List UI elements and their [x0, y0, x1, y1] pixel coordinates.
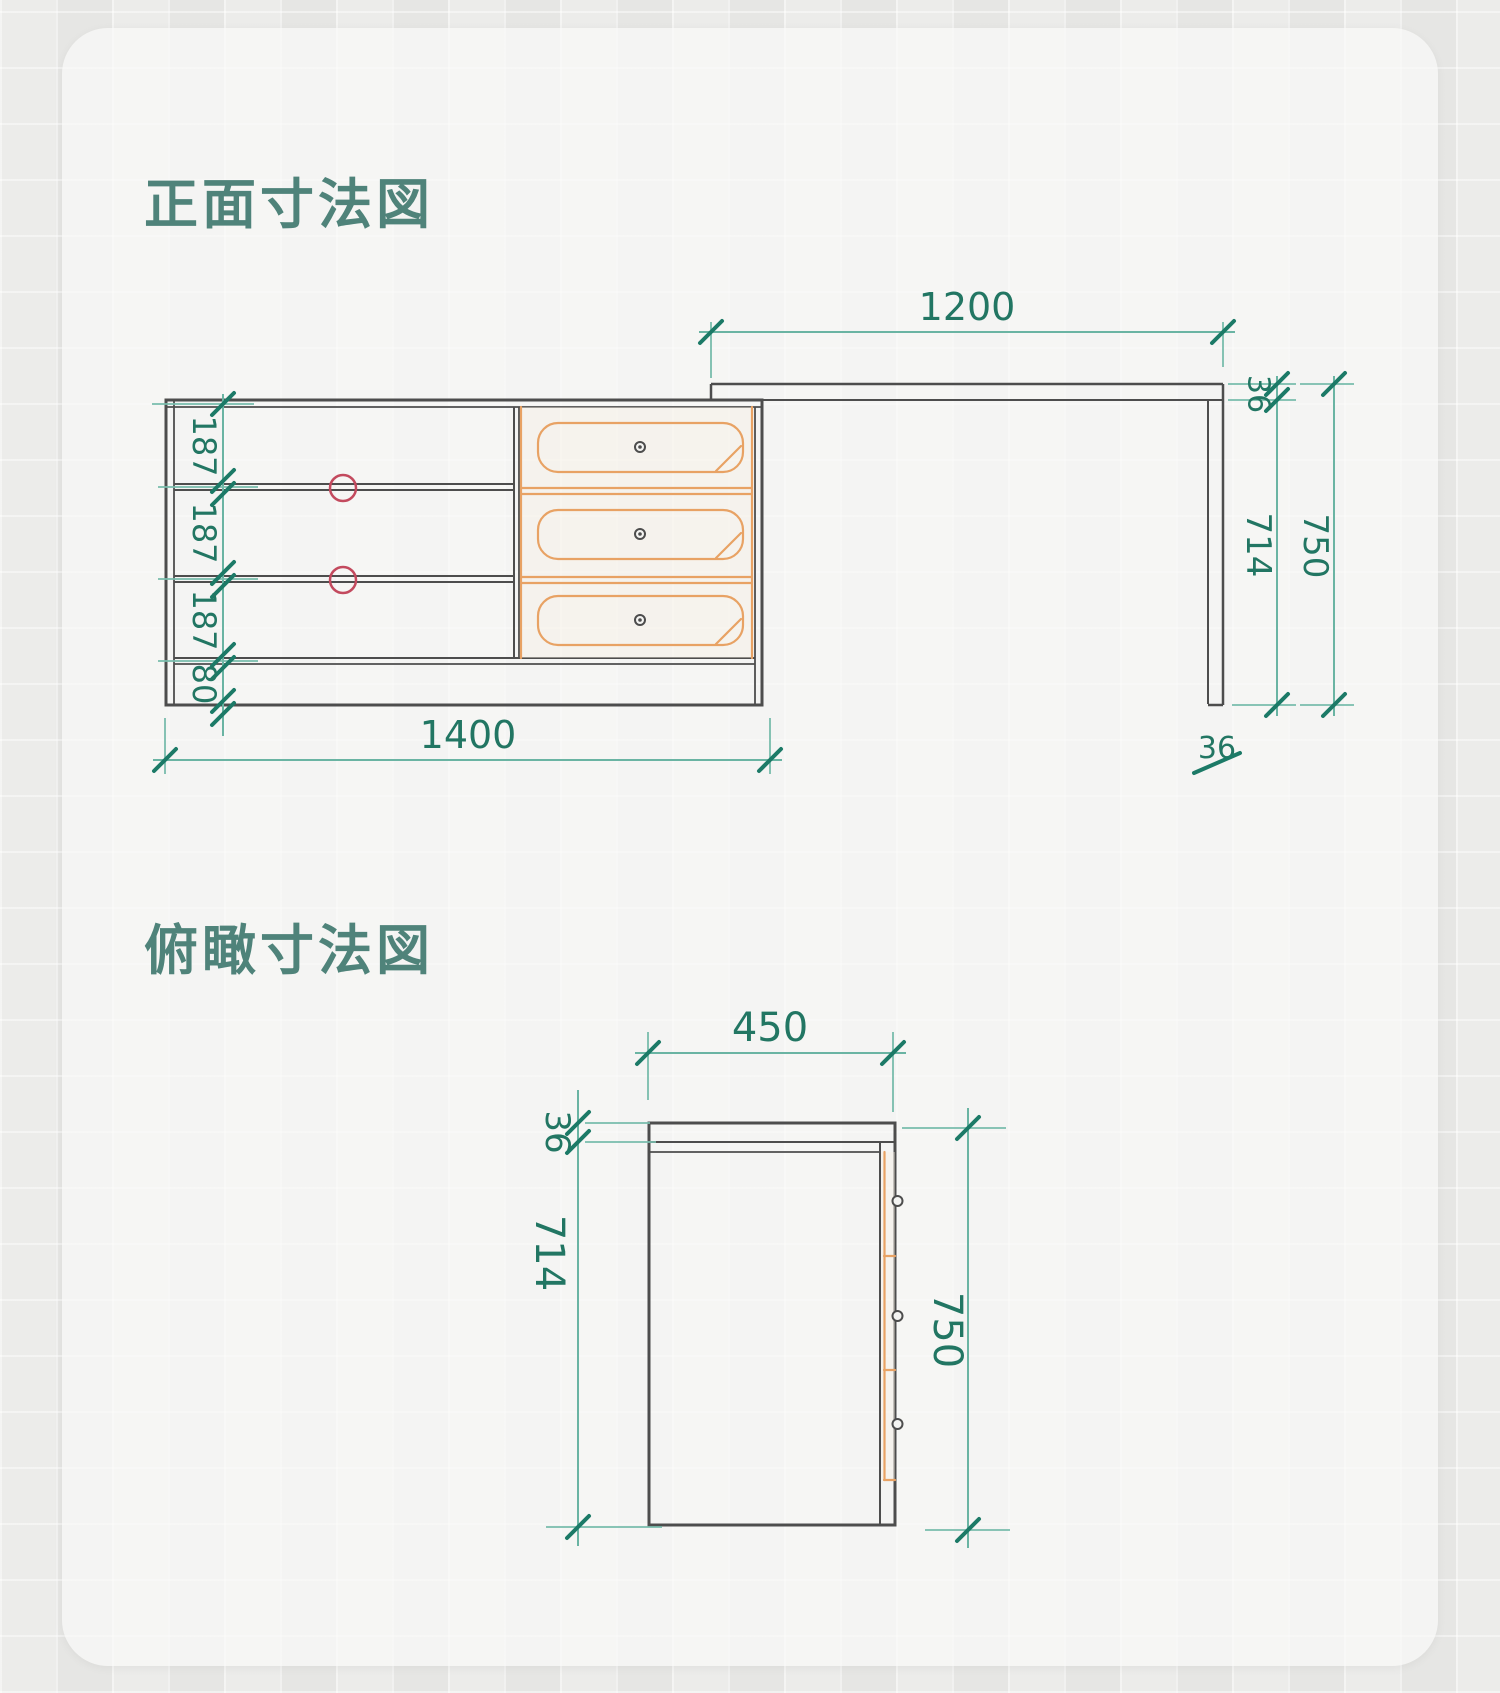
front-dim-leg-thickness-label: 36 [1198, 731, 1236, 766]
front-dim-desk-width-label: 1200 [919, 285, 1016, 329]
technical-drawing-canvas: 1200 187 187 187 80 1400 [0, 0, 1500, 1693]
top-dim-depth-label: 450 [732, 1005, 808, 1051]
top-dim-cabinet-height-label: 714 [526, 1215, 572, 1291]
front-dim-base-label: 80 [185, 664, 223, 705]
front-dim-shelf2-label: 187 [185, 502, 223, 563]
top-dim-total-height-label: 750 [924, 1292, 970, 1368]
drawer-section [521, 407, 752, 658]
red-circle-marker-bottom [330, 567, 356, 593]
top-view-knob-2 [893, 1311, 903, 1321]
front-dim-leg-thickness: 36 [1194, 731, 1240, 773]
front-dim-cabinet-width: 1400 [153, 713, 782, 774]
front-dim-shelf3-label: 187 [185, 589, 223, 650]
front-dim-right-chain: 36 714 [1228, 373, 1296, 716]
top-view-knob-1 [893, 1196, 903, 1206]
front-dim-total-height: 750 [1295, 373, 1354, 716]
red-circle-marker-top [330, 475, 356, 501]
top-dim-left-chain: 36 714 [526, 1090, 662, 1546]
front-dim-desktop-thickness-label: 36 [1241, 375, 1276, 413]
front-dim-cabinet-width-label: 1400 [420, 713, 517, 757]
page: { "front_view": { "title": "正面寸法図", "dim… [0, 0, 1500, 1693]
top-view-body-outline [649, 1123, 895, 1525]
top-view-knob-3 [893, 1419, 903, 1429]
front-dim-total-height-label: 750 [1295, 514, 1335, 579]
front-dim-desk-width: 1200 [699, 285, 1235, 378]
desktop-and-leg [711, 384, 1223, 705]
top-dim-depth: 450 [635, 1005, 906, 1112]
top-view-drawer-edge [881, 1152, 903, 1480]
front-view-drawing: 1200 187 187 187 80 1400 [152, 285, 1354, 774]
front-dim-leg-height-label: 714 [1238, 513, 1278, 578]
front-dim-shelf1-label: 187 [185, 415, 223, 476]
front-dim-left-chain: 187 187 187 80 [152, 393, 258, 736]
top-view-drawing: 450 36 714 750 [526, 1005, 1010, 1548]
top-dim-desktop-thickness-label: 36 [537, 1110, 577, 1153]
top-dim-total-height: 750 [902, 1108, 1010, 1548]
